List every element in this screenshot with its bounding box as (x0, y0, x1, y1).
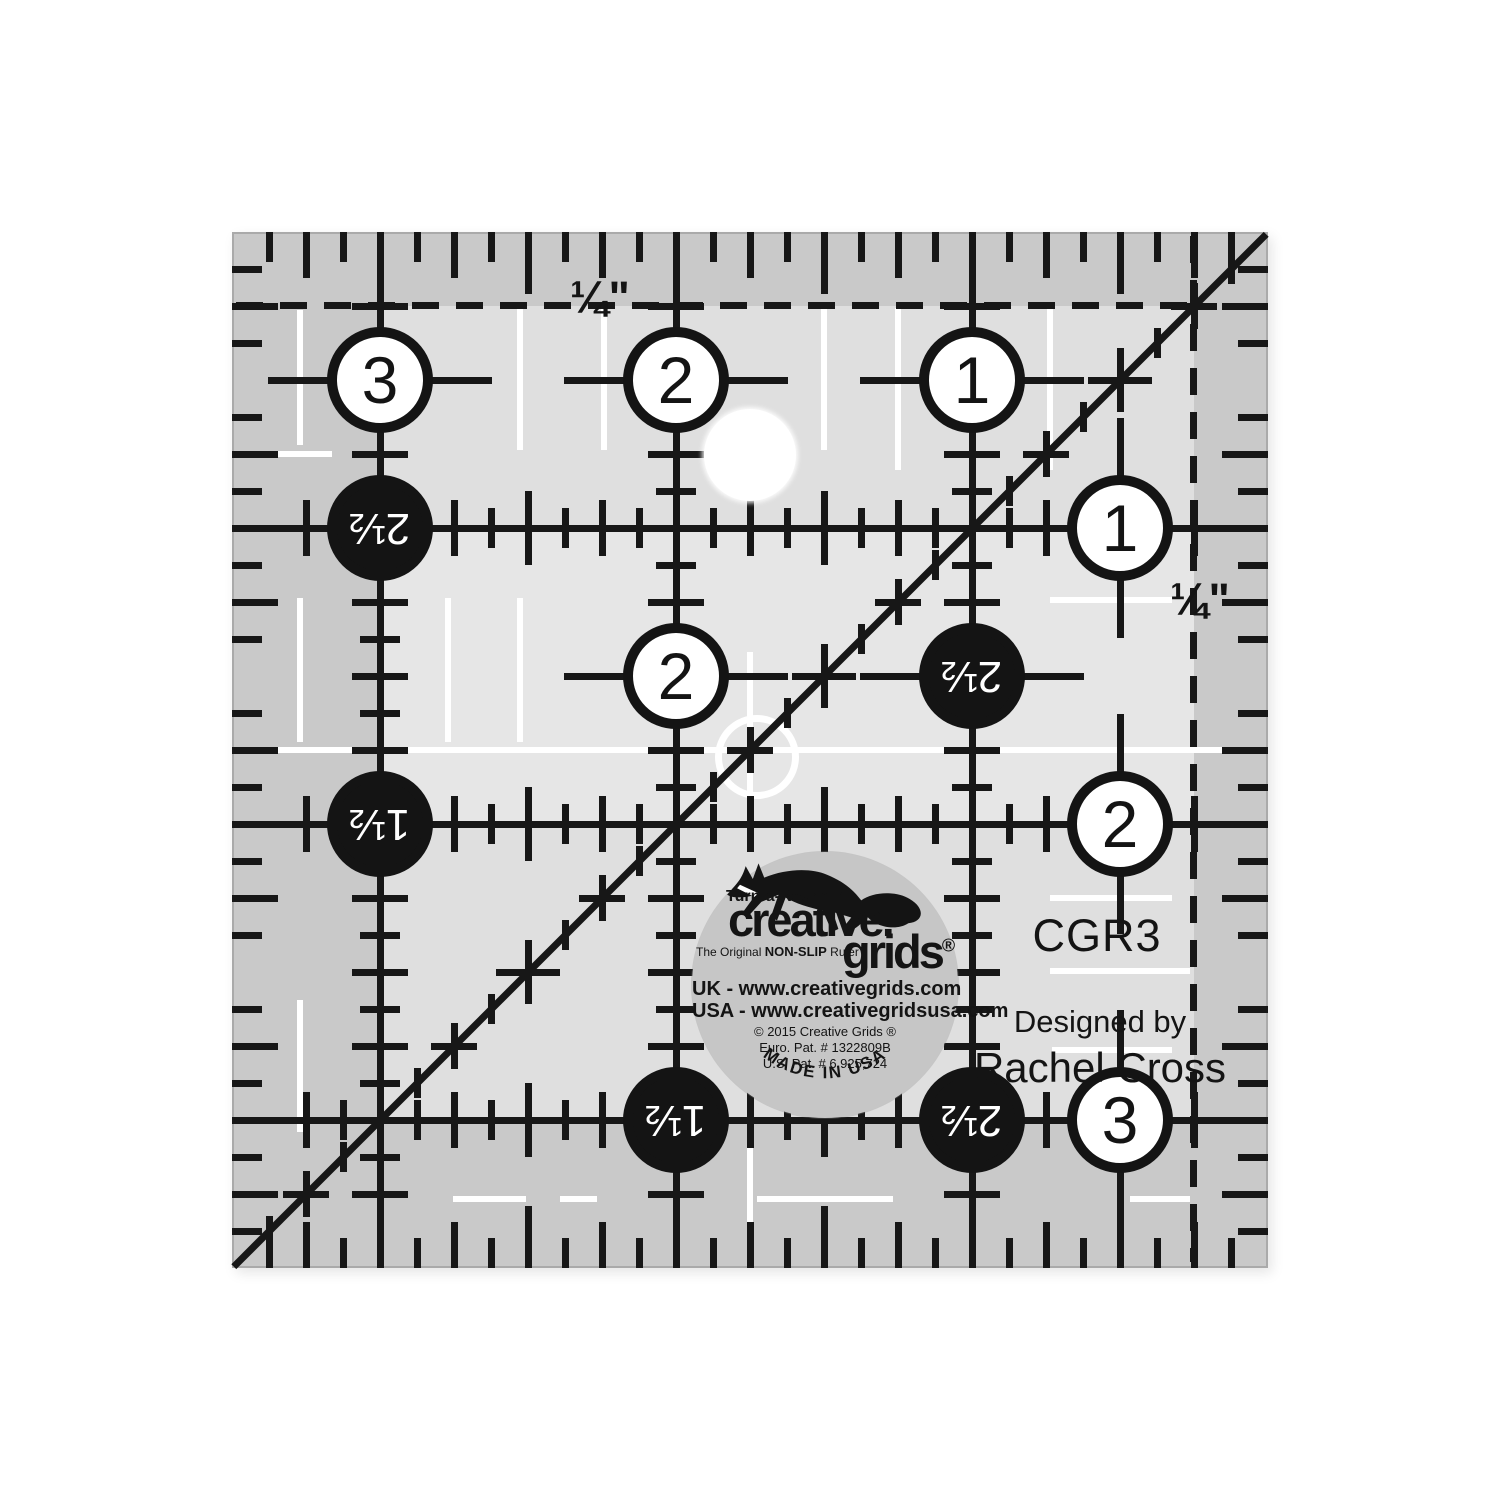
quarter-inch-label-right: ¼" (1170, 574, 1231, 626)
measure-circle-label: 3 (1102, 1082, 1139, 1158)
measure-circle-black-rotated: 1½ (327, 771, 433, 877)
measure-circle-white: 1 (919, 327, 1025, 433)
designed-by-text: Designed by (980, 1004, 1220, 1040)
model-number: CGR3 (1012, 910, 1182, 962)
measure-circle-label: 1 (954, 342, 991, 418)
measure-circle-white: 3 (327, 327, 433, 433)
made-in-usa-arc-text: MADE IN USA (692, 852, 958, 1118)
designer-name: Rachel Cross (960, 1044, 1240, 1092)
measure-circle-label: 2 (658, 638, 695, 714)
quilting-ruler: 32112322½2½1½1½2½ ¼" ¼" CGR3 Designed by… (232, 232, 1268, 1268)
measure-circle-label: 2 (1102, 786, 1139, 862)
measure-circle-label: 2 (658, 342, 695, 418)
measure-circle-white: 2 (623, 327, 729, 433)
measure-circle-label: 1½ (349, 799, 410, 849)
measure-circle-black-rotated: 2½ (919, 623, 1025, 729)
measure-circle-label: 2½ (349, 503, 410, 553)
product-photo: 32112322½2½1½1½2½ ¼" ¼" CGR3 Designed by… (0, 0, 1500, 1500)
quarter-inch-label-top: ¼" (570, 272, 631, 324)
measure-circle-black-rotated: 2½ (327, 475, 433, 581)
hanging-hole (704, 409, 796, 501)
measure-circle-white: 2 (1067, 771, 1173, 877)
measure-circle-label: 2½ (941, 651, 1002, 701)
measure-circle-label: 3 (362, 342, 399, 418)
measure-circle-label: 1 (1102, 490, 1139, 566)
measure-circle-white: 1 (1067, 475, 1173, 581)
svg-text:MADE IN USA: MADE IN USA (760, 1044, 890, 1082)
brand-seal: Turn-a-Round™ creative. grids® The Origi… (692, 852, 958, 1118)
measure-circle-white: 2 (623, 623, 729, 729)
